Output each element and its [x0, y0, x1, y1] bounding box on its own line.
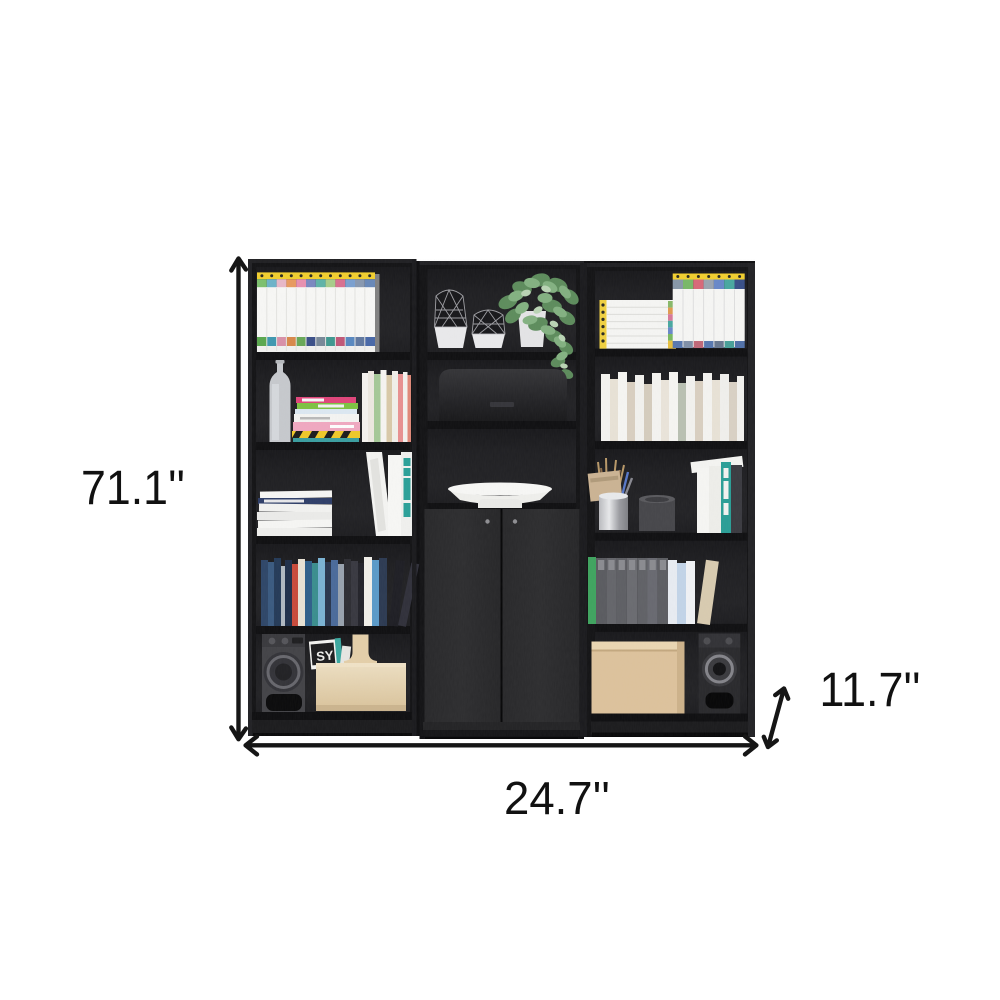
svg-text:71.1'': 71.1'' [81, 462, 185, 515]
svg-text:11.7'': 11.7'' [820, 664, 921, 717]
svg-text:24.7'': 24.7'' [504, 772, 610, 824]
